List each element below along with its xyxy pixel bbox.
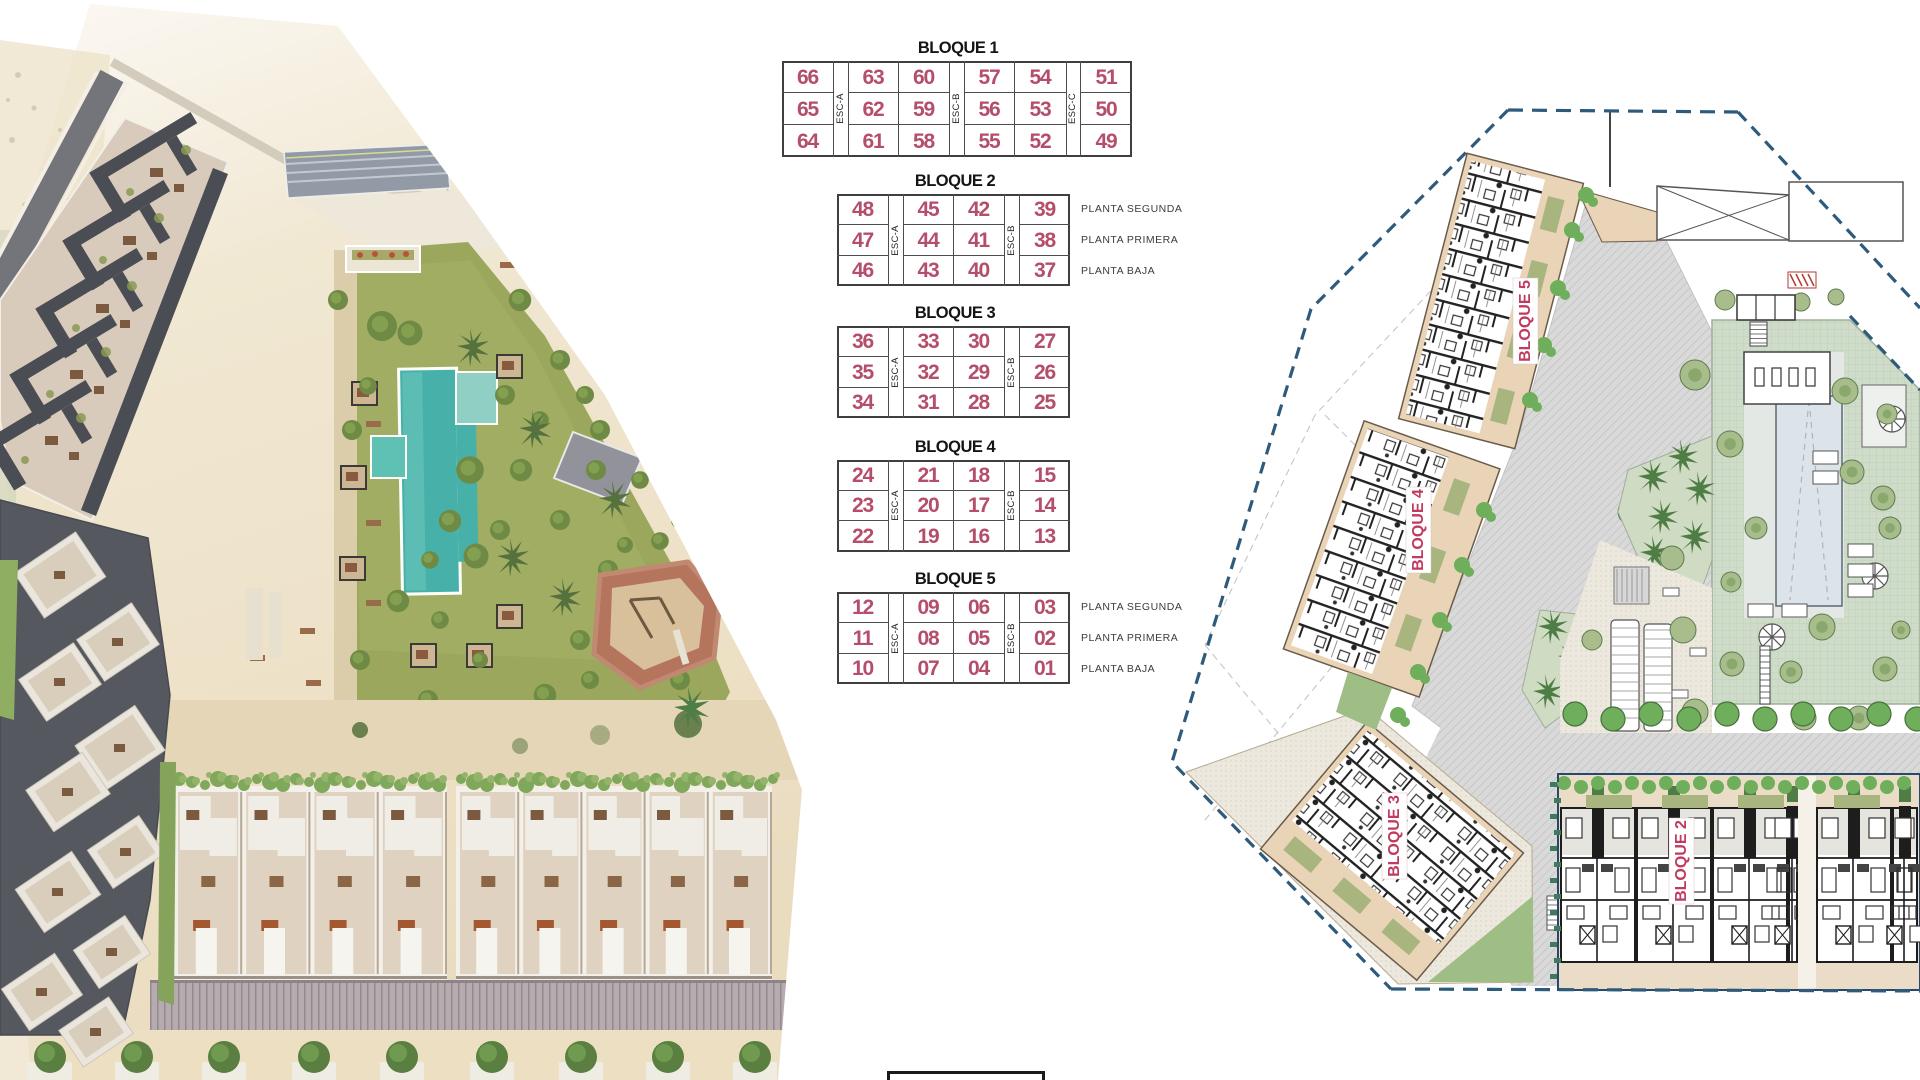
svg-text:BLOQUE 5: BLOQUE 5 <box>1517 280 1534 362</box>
svg-text:BLOQUE 3: BLOQUE 3 <box>1386 795 1403 877</box>
svg-text:BLOQUE 4: BLOQUE 4 <box>1410 489 1427 571</box>
svg-text:BLOQUE 2: BLOQUE 2 <box>1673 820 1690 902</box>
